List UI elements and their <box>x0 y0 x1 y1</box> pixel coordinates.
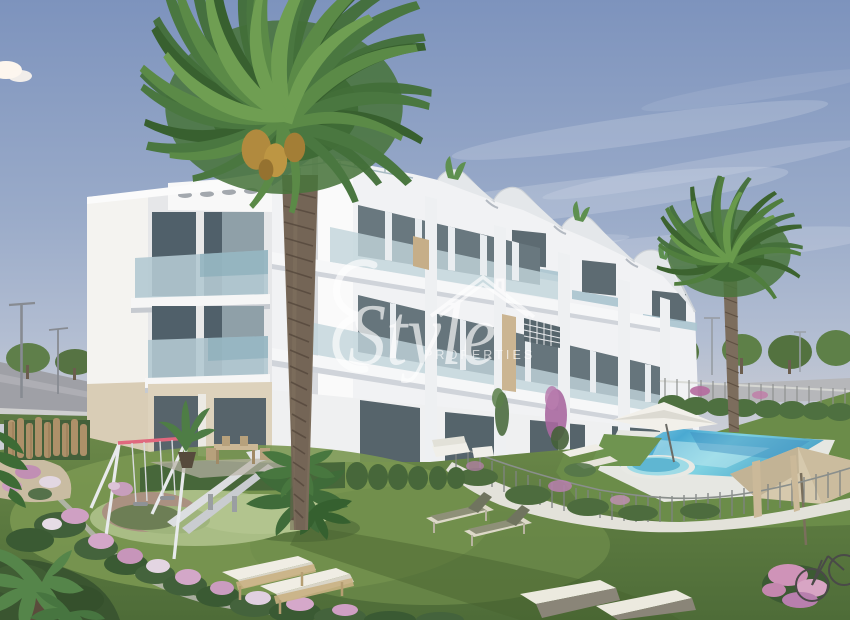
svg-text:Style: Style <box>348 287 496 384</box>
svg-text:PROPERTIES: PROPERTIES <box>424 348 535 362</box>
